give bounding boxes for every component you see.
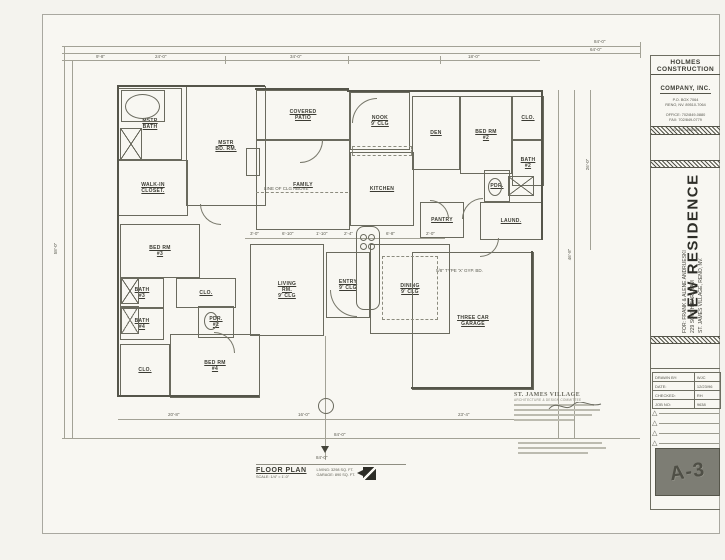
dimension-label: 34'-0" [290, 54, 301, 59]
info-row: CHECKED:RH [653, 391, 720, 400]
room-clo-2: CLO. [512, 96, 544, 140]
drawing-info-table: DRAWN BY:WJCDATE:12/23/96CHECKED:RHJOB N… [652, 372, 721, 409]
marker-arrow [321, 446, 329, 453]
dimension-line [348, 56, 349, 64]
dimension-label: 23'-4" [458, 412, 469, 417]
room-den: DEN [412, 96, 460, 170]
room-label-closet-4: CLO. [138, 367, 151, 373]
dimension-label: 18'-0" [468, 54, 479, 59]
room-label-bed-rm-2: BED RM#2 [475, 129, 497, 141]
dimension-line [245, 238, 445, 239]
project-info: FOR: FRANK & ALENE ANDRUESKI 229 SOUTH E… [681, 163, 705, 333]
room-label-hall-closet: CLO. [199, 290, 212, 296]
dimension-label: 16'-0" [298, 412, 309, 417]
dimension-line [558, 90, 559, 438]
info-table-topline [651, 368, 720, 369]
dimension-label: 5/8" TYPE 'X' GYP. BD. [436, 268, 483, 273]
room-laundry: LAUND. [480, 202, 542, 240]
dimension-label: 26'-0" [585, 159, 590, 170]
upper-cabinets [352, 146, 412, 156]
company-name-line1: HOLMES CONSTRUCTION [651, 59, 720, 75]
burner [368, 243, 375, 250]
dimension-label: 84'-0" [334, 432, 345, 437]
exterior-wall [347, 90, 543, 92]
illegible-text-line [518, 447, 606, 449]
illegible-text-line [518, 452, 588, 454]
dimension-line [225, 56, 226, 64]
info-row-value: WJC [695, 375, 706, 380]
illegible-text-line [514, 419, 574, 421]
shower-bath2 [508, 176, 534, 196]
dimension-line [64, 46, 65, 438]
exterior-wall [541, 90, 543, 240]
room-label-living-rm: LIVINGRM.9' CLG [278, 281, 296, 299]
shower-bath3 [121, 278, 139, 304]
exterior-wall [255, 88, 349, 90]
site-city: ST. JAMES VILLAGE, RENO, NV. [697, 163, 705, 333]
room-label-bath-2: BATH#2 [521, 157, 536, 169]
room-label-three-car-garage: THREE CARGARAGE [457, 315, 489, 327]
room-covered-patio: COVEREDPATIO [256, 90, 350, 140]
info-row: DATE:12/23/96 [653, 382, 720, 391]
section-marker [318, 398, 334, 414]
sheet-number-box: A-3 [655, 448, 720, 496]
mstr-door-swing [200, 204, 221, 225]
room-label-den: DEN [430, 130, 441, 136]
room-label-walk-in-closet: WALK-INCLOSET. [141, 182, 164, 194]
titleblock-bottom-line [650, 509, 720, 510]
north-arrow-icon [363, 467, 376, 480]
dimension-label: 58'-0" [53, 243, 58, 254]
room-label-laundry: LAUND. [501, 218, 522, 224]
burner [360, 234, 367, 241]
info-row-value: RH [695, 393, 703, 398]
approval-signature [548, 402, 602, 412]
burner [360, 243, 367, 250]
info-row-label: JOB NO: [653, 400, 695, 408]
dimension-line [62, 438, 640, 439]
dimension-label: LINE OF CLG ABOVE [264, 186, 309, 191]
room-label-bed-rm-3: BED RM#3 [149, 245, 171, 257]
room-kitchen: KITCHEN [350, 152, 414, 226]
room-closet-4: CLO. [120, 344, 170, 396]
company-name-line2: COMPANY, INC. [660, 86, 710, 94]
revision-delta-icon: △ [652, 420, 657, 427]
room-label-bed-rm-4: BED RM#4 [204, 360, 226, 372]
revision-delta-icon: △ [652, 430, 657, 437]
exterior-wall [117, 85, 119, 397]
revision-line [659, 443, 719, 444]
room-label-clo-2: CLO. [521, 115, 534, 121]
sheet-number: A-3 [668, 458, 706, 486]
dimension-line [440, 56, 441, 64]
company-block: HOLMES CONSTRUCTION COMPANY, INC. P.O. B… [651, 58, 720, 133]
info-row-value: 12/23/96 [695, 384, 713, 389]
dimension-label: 46'-8" [567, 249, 572, 260]
area-summary: LIVING: 3298 SQ. FT. GARAGE: 890 SQ. FT. [317, 468, 356, 478]
drawing-title: FLOOR PLAN [256, 467, 307, 474]
title-strip-rule [256, 464, 406, 465]
info-row: DRAWN BY:WJC [653, 373, 720, 382]
drawing-title-strip: FLOOR PLAN SCALE: 1/4" = 1'-0" LIVING: 3… [256, 464, 406, 480]
dimension-label: 84'-0" [316, 455, 327, 460]
dimension-label: 9'-8" [96, 54, 105, 59]
exterior-wall [411, 387, 533, 389]
dimension-label: 6'-8" [386, 231, 395, 236]
room-living-rm: LIVINGRM.9' CLG [250, 244, 324, 336]
room-label-kitchen: KITCHEN [370, 186, 394, 192]
master-shower [120, 128, 142, 160]
dimension-line [62, 60, 540, 61]
garage-area: GARAGE: 890 SQ. FT. [317, 473, 356, 478]
dimension-line [62, 46, 640, 47]
room-label-covered-patio: COVEREDPATIO [290, 109, 317, 121]
dimension-label: 84'-0" [594, 39, 605, 44]
client-name: FOR: FRANK & ALENE ANDRUESKI [681, 163, 689, 333]
toilet-pdr [488, 178, 502, 196]
dimension-line [72, 60, 73, 438]
dimension-label: 3'-0" [250, 231, 259, 236]
drawing-scale: SCALE: 1/4" = 1'-0" [256, 475, 307, 479]
exterior-wall [117, 85, 265, 87]
room-bed-rm-3: BED RM#3 [120, 224, 200, 278]
ceiling-line [256, 192, 348, 193]
revision-delta-icon: △ [652, 440, 657, 447]
revision-row: △ [652, 418, 719, 428]
illegible-text-line [518, 442, 602, 444]
toilet-pdr2 [204, 312, 218, 330]
revision-row: △ [652, 428, 719, 438]
revision-line [659, 413, 719, 414]
info-row-label: CHECKED: [653, 391, 695, 399]
revision-line [659, 423, 719, 424]
room-bed-rm-2: BED RM#2 [460, 96, 512, 174]
room-walk-in-closet: WALK-INCLOSET. [118, 160, 188, 216]
revision-delta-icon: △ [652, 410, 657, 417]
revision-line [659, 433, 719, 434]
dimension-label: 20'-8" [168, 412, 179, 417]
approval-note [518, 442, 606, 457]
revision-row: △ [652, 408, 719, 418]
dimension-label: 64'-0" [590, 47, 601, 52]
dimension-line [62, 53, 640, 54]
room-label-mstr-bd-rm: MSTRBD. RM. [215, 140, 236, 152]
dimension-label: 1'-10" [316, 231, 327, 236]
shower-bath4 [121, 306, 139, 334]
dimension-line [640, 42, 641, 58]
dimension-label: 2'-0" [426, 231, 435, 236]
site-address: 229 SOUTH EARLHAM [689, 163, 697, 333]
dimension-line [574, 90, 575, 438]
info-row-value: 9638 [695, 402, 706, 407]
dimension-label: 6'-10" [282, 231, 293, 236]
titleblock-hatch-bar [651, 126, 720, 135]
info-row-label: DATE: [653, 382, 695, 390]
burner [368, 234, 375, 241]
room-mstr-bd-rm: MSTRBD. RM. [186, 86, 266, 206]
illegible-text-line [514, 414, 592, 416]
fireplace [246, 148, 260, 176]
revision-zone: △△△△ [652, 408, 719, 448]
revision-row: △ [652, 438, 719, 448]
titleblock-top-line [650, 55, 720, 56]
dimension-label: 2'-4" [344, 231, 353, 236]
info-row-label: DRAWN BY: [653, 373, 695, 381]
exterior-wall [117, 395, 259, 397]
room-hall-closet: CLO. [176, 278, 236, 308]
dining-ceiling-break [382, 256, 438, 320]
master-tub [125, 94, 160, 119]
bed2-door-swing [462, 198, 483, 219]
exterior-wall [531, 251, 533, 389]
dimension-label: 24'-0" [155, 54, 166, 59]
